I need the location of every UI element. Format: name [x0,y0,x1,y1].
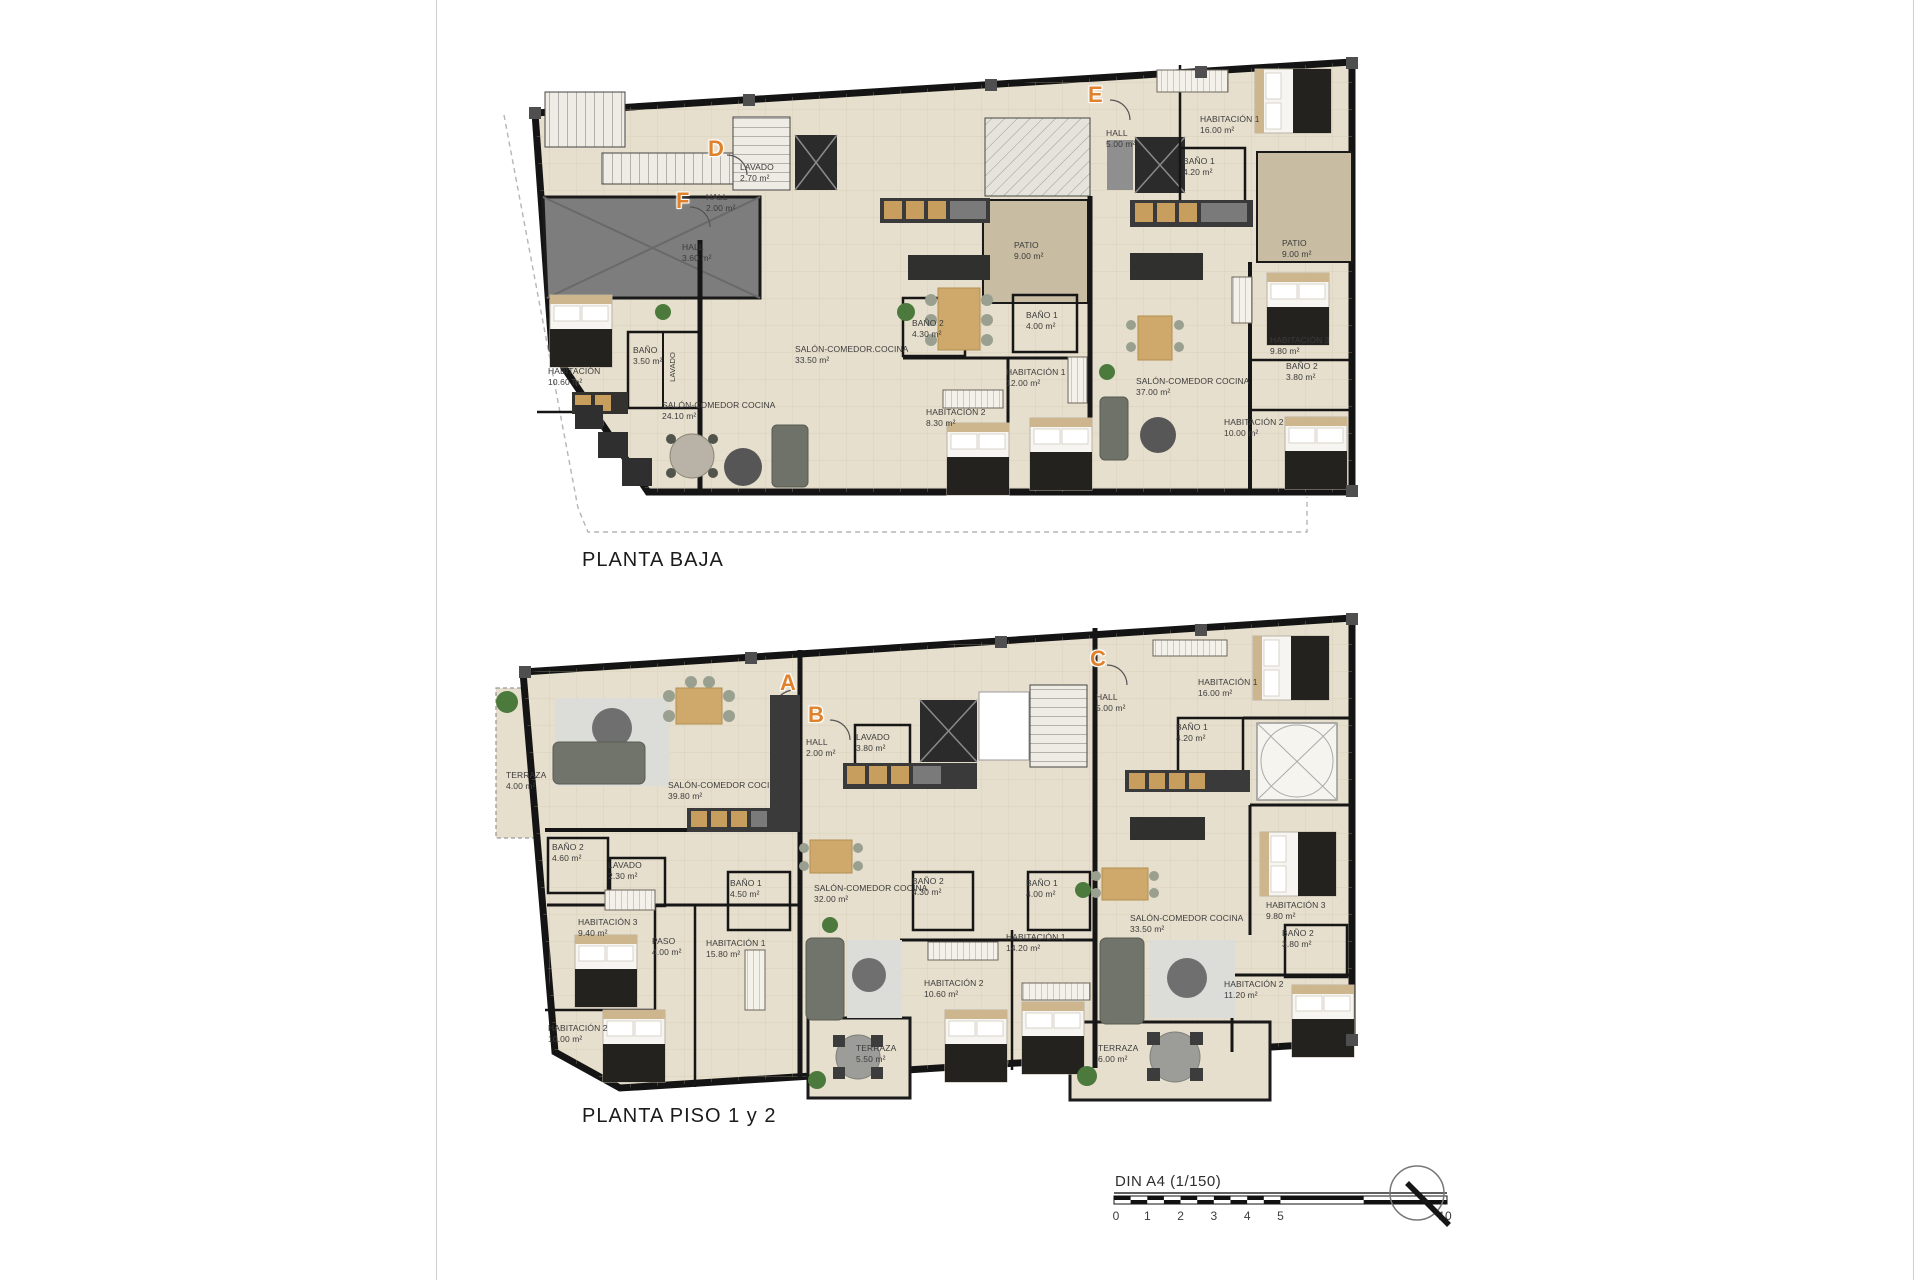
bed-icon [550,295,612,367]
room-label: HABITACIÓN10.60 m² [548,366,600,387]
room-label: HALL5.00 m² [1106,128,1136,149]
closet-icon [605,890,655,910]
unit-label-b: B [808,702,824,728]
room-label: TERRAZA4.00 m² [506,770,546,791]
stairs-icon [1030,685,1087,767]
closet-icon [1068,357,1087,403]
room-label: HABITACIÓN 115.80 m² [706,938,766,959]
stairwell-hatch [985,118,1090,196]
room-label: PATIO9.00 m² [1014,240,1044,261]
bed-icon [945,1010,1007,1082]
room-label: HABITACIÓN 39.40 m² [578,917,638,938]
bed-icon [1022,1002,1084,1074]
lightwell [1257,723,1337,800]
bed-icon [1030,418,1092,490]
room-label: HABITACIÓN 210.60 m² [924,978,984,999]
room-label: HABITACIÓN 116.00 m² [1200,114,1260,135]
room-label: HALL2.00 m² [806,737,836,758]
room-label: LAVADO3.80 m² [856,732,890,753]
stairs-icon [545,92,625,147]
plan-title-planta-baja: PLANTA BAJA [582,549,724,572]
closet-icon [928,942,998,960]
room-label: HABITACIÓN 39.80 m² [1270,335,1330,356]
room-label: BAÑO 23.80 m² [1286,361,1318,382]
closet-icon [1232,277,1252,323]
room-label: HABITACIÓN 114.20 m² [1006,932,1066,953]
unit-label-d: D [708,136,724,162]
unit-label-c: C [1090,646,1106,672]
room-label: BAÑO 23.80 m² [1282,928,1314,949]
room-label: SALÓN-COMEDOR.COCINA33.50 m² [795,344,908,365]
room-label: HABITACIÓN 210.00 m² [1224,417,1284,438]
bed-icon [1285,417,1347,489]
room-label: BAÑO 24.30 m² [912,876,944,897]
room-label: HABITACIÓN 211.20 m² [1224,979,1284,1000]
svg-text:1: 1 [1144,1209,1151,1223]
bed-icon [1255,69,1331,133]
room-label: TERRAZA6.00 m² [1098,1043,1138,1064]
room-label: HALL5.00 m² [1096,692,1126,713]
floor-plan-sheet: { "plans": [ { "title": "PLANTA BAJA", "… [0,0,1920,1280]
svg-text:5: 5 [1277,1209,1284,1223]
room-label: TERRAZA5.50 m² [856,1043,896,1064]
unit-label-a: A [780,670,796,696]
room-label: HABITACIÓN 28.30 m² [926,407,986,428]
svg-text:3: 3 [1211,1209,1218,1223]
north-arrow-icon [1375,1155,1465,1245]
room-label: PASO4.00 m² [652,936,682,957]
plan-title-planta-piso: PLANTA PISO 1 y 2 [582,1105,776,1128]
svg-text:0: 0 [1113,1209,1120,1223]
room-label: BAÑO 14.20 m² [1176,722,1208,743]
bed-icon [947,423,1009,495]
room-label: BAÑO 14.00 m² [1026,878,1058,899]
room-label: HABITACIÓN 116.00 m² [1198,677,1258,698]
room-label: HABITACIÓN 39.80 m² [1266,900,1326,921]
scale-bar-label: DIN A4 (1/150) [1115,1173,1221,1190]
room-label: HALL2.00 m² [706,192,736,213]
bed-icon [1260,832,1336,896]
closet-icon [1153,640,1227,656]
closet-icon [1157,70,1228,92]
svg-text:2: 2 [1177,1209,1184,1223]
room-label: HALL3.60 m² [682,242,712,263]
unit-label-e: E [1088,82,1103,108]
room-label: SALÓN-COMEDOR COCINA32.00 m² [814,883,927,904]
page-border-right [1913,0,1914,1280]
closet-icon [943,390,1003,408]
stair-void [979,692,1029,760]
room-label: LAVADO [668,352,677,382]
room-label: BAÑO3.50 m² [633,345,663,366]
room-label: BAÑO 14.00 m² [1026,310,1058,331]
closet-icon [1022,983,1090,1000]
unit-label-f: F [676,188,689,214]
room-label: BAÑO 14.20 m² [1183,156,1215,177]
room-label: SALÓN-COMEDOR COCINA24.10 m² [662,400,775,421]
planta-piso-drawing [495,590,1370,1110]
room-label: BAÑO 14.50 m² [730,878,762,899]
room-label: SALÓN-COMEDOR COCINA37.00 m² [1136,376,1249,397]
room-label: HABITACIÓN 112.00 m² [1006,367,1066,388]
bed-icon [1292,985,1354,1057]
room-label: LAVADO2.30 m² [608,860,642,881]
svg-text:4: 4 [1244,1209,1251,1223]
room-label: SALÓN-COMEDOR COCINA39.80 m² [668,780,781,801]
room-label: HABITACIÓN 210.00 m² [548,1023,608,1044]
room-label: BAÑO 24.60 m² [552,842,584,863]
room-label: PATIO9.00 m² [1282,238,1312,259]
elevator-icon [920,700,977,762]
room-label: BAÑO 24.30 m² [912,318,944,339]
bed-icon [575,935,637,1007]
stairs-icon [602,153,753,184]
room-label: LAVADO2.70 m² [740,162,774,183]
page-border-left [436,0,437,1280]
room-label: SALÓN-COMEDOR COCINA33.50 m² [1130,913,1243,934]
bed-icon [603,1010,665,1082]
elevator-icon [795,135,837,190]
bed-icon [1253,636,1329,700]
